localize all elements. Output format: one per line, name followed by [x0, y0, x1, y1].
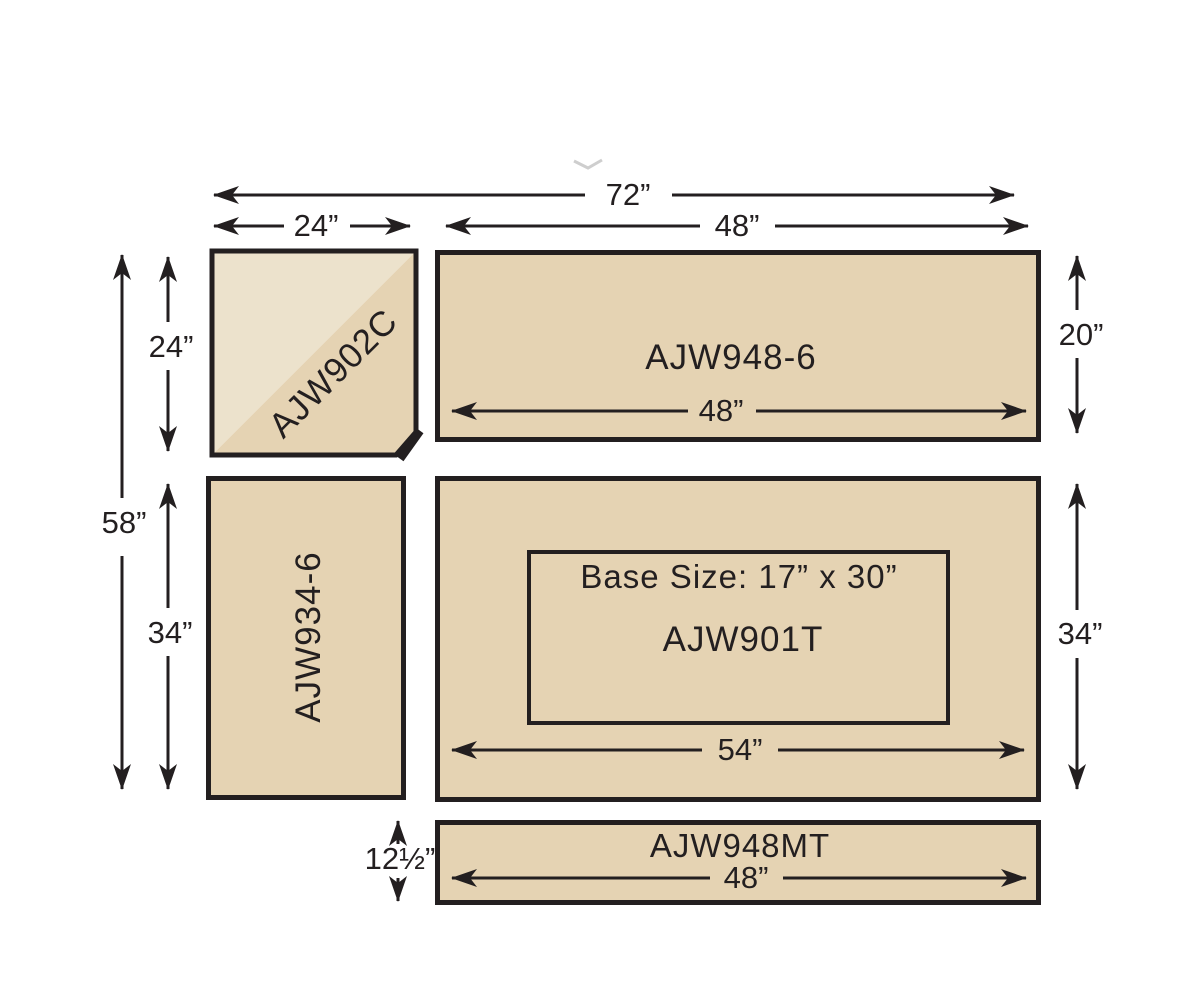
dim-corner-width-label: 24” — [294, 208, 339, 243]
dim-main-height-label: 34” — [1058, 616, 1103, 651]
dim-strip-height: 12½” — [365, 821, 436, 901]
dim-main-height: 34” — [1058, 484, 1103, 789]
main-piece-base-size-label: Base Size: 17” x 30” — [580, 558, 897, 595]
dim-corner-height-label: 24” — [149, 329, 194, 364]
countertop-dimension-diagram: 72” 24” 48” AJW902C AJW948-6 48” 20” — [0, 0, 1200, 1000]
dim-right-width-label: 48” — [715, 208, 760, 243]
dim-strip-height-label: 12½” — [365, 841, 436, 876]
left-piece-label: AJW934-6 — [289, 551, 328, 722]
dim-left-section-height-label: 34” — [148, 615, 193, 650]
top-right-piece-label: AJW948-6 — [645, 338, 816, 377]
dim-top-right-height: 20” — [1059, 256, 1104, 433]
dim-corner-width: 24” — [214, 208, 410, 243]
main-piece-label: AJW901T — [663, 620, 824, 659]
dim-total-width: 72” — [214, 177, 1014, 212]
piece-strip-AJW948MT: AJW948MT 48” — [438, 823, 1039, 903]
dim-total-height: 58” — [102, 255, 147, 789]
dim-strip-width-label: 48” — [724, 860, 769, 895]
dim-top-right-inner-label: 48” — [699, 393, 744, 428]
piece-main-AJW901T: Base Size: 17” x 30” AJW901T 54” — [438, 479, 1039, 800]
piece-left-AJW934-6: AJW934-6 — [209, 479, 404, 798]
dim-corner-height: 24” — [149, 257, 194, 451]
dim-total-width-label: 72” — [606, 177, 651, 212]
dim-main-width-label: 54” — [718, 732, 763, 767]
dim-top-right-height-label: 20” — [1059, 317, 1104, 352]
diagram-stage: 72” 24” 48” AJW902C AJW948-6 48” 20” — [0, 0, 1200, 1000]
dim-total-height-label: 58” — [102, 505, 147, 540]
piece-corner-AJW902C: AJW902C — [212, 251, 419, 458]
scan-artifact-mark — [574, 160, 602, 168]
piece-top-right-AJW948-6: AJW948-6 48” — [438, 253, 1039, 440]
dim-left-section-height: 34” — [148, 484, 193, 789]
dim-right-width: 48” — [446, 208, 1028, 243]
strip-piece-label: AJW948MT — [650, 827, 830, 864]
